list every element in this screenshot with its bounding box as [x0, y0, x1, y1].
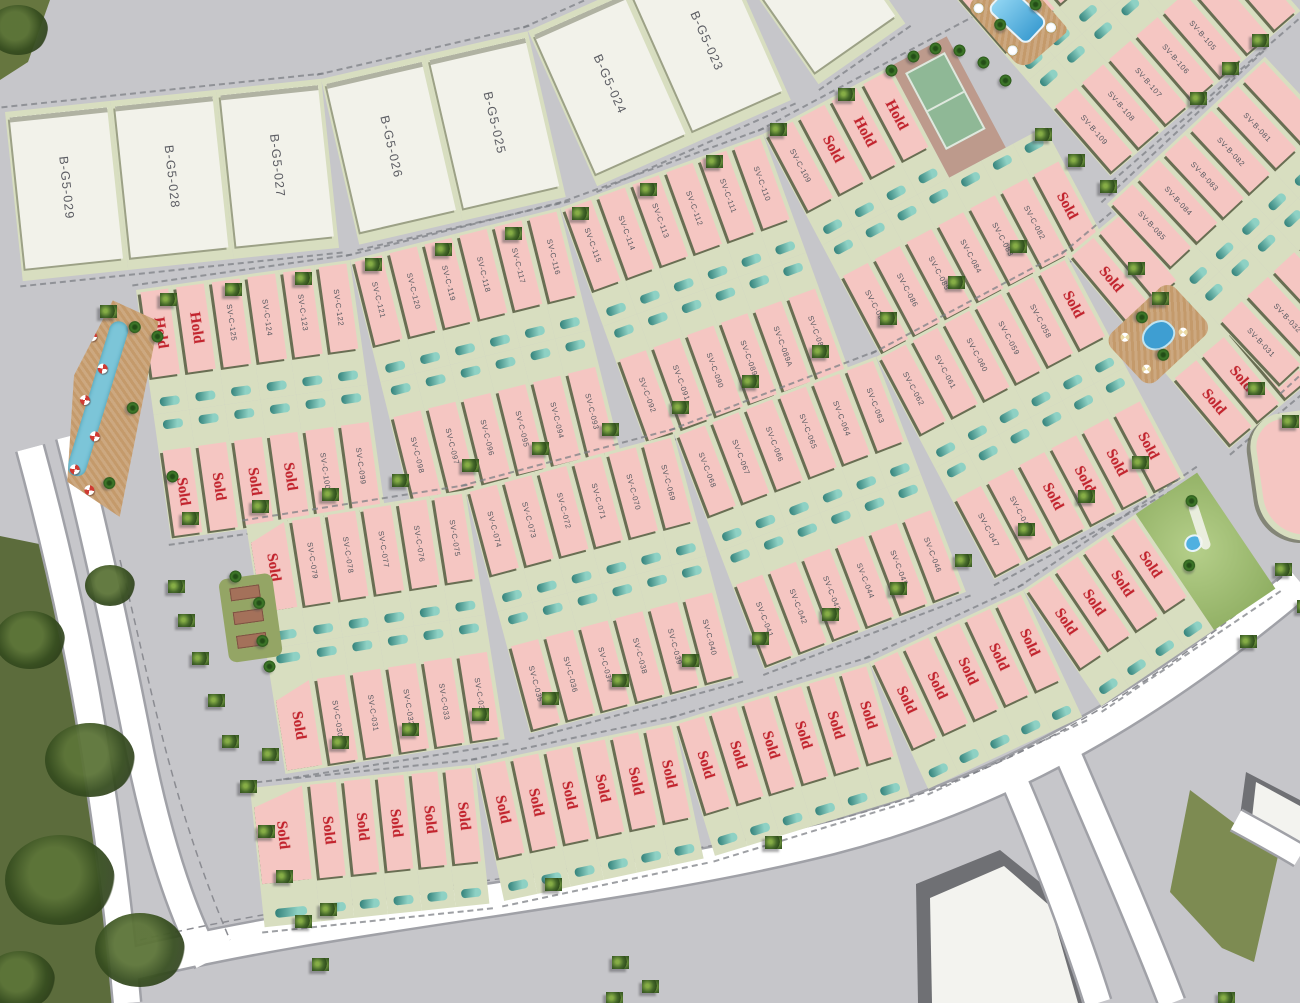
plunge-pool [162, 418, 183, 430]
palm-tree-icon [165, 470, 180, 483]
tree-icon [890, 582, 907, 595]
plunge-pool [269, 403, 290, 415]
plunge-pool [639, 289, 661, 304]
tree-canopy [95, 913, 185, 987]
plunge-pool [960, 171, 982, 188]
plot-body: Sold [411, 771, 447, 867]
planter-box [233, 608, 265, 625]
plunge-pool [423, 629, 444, 641]
plunge-pool [675, 542, 697, 556]
plunge-pool [977, 444, 999, 461]
plot-body: Sold [445, 768, 481, 864]
plot-body: B-G5-028 [115, 96, 228, 257]
plunge-pool [489, 334, 511, 348]
plot-body: Sold [310, 782, 346, 878]
tree-icon [1240, 635, 1257, 648]
tree-icon [100, 305, 117, 318]
palm-tree-icon [228, 570, 243, 583]
palm-tree-icon [251, 596, 268, 611]
plunge-pool [524, 325, 546, 339]
plunge-pool [571, 570, 593, 584]
block-svc-lane: SoldSoldSoldSoldSoldSold [250, 764, 489, 927]
plot-B-G5-029[interactable]: B-G5-029 [5, 101, 128, 281]
tree-icon [462, 459, 479, 472]
plunge-pool [454, 343, 476, 357]
plunge-pool [917, 167, 939, 184]
plot-B-G5-028[interactable]: B-G5-028 [110, 90, 233, 270]
plunge-pool [647, 311, 669, 326]
tree-icon [1248, 382, 1265, 395]
plunge-pool [673, 277, 695, 292]
tree-icon [160, 293, 177, 306]
tree-icon [322, 488, 339, 501]
block-svc-south: SoldSV-C-079SV-C-078SV-C-077SV-C-076SV-C… [246, 490, 505, 774]
palm-tree-icon [150, 330, 165, 343]
plot-number-label: B-G5-028 [115, 96, 228, 257]
tree-icon [182, 512, 199, 525]
plunge-pool [542, 602, 564, 616]
tree-icon [706, 155, 723, 168]
plot-body: SV-C-122 [319, 263, 359, 352]
block-svc-lane-row: SoldSoldSoldSoldSoldSold [674, 662, 910, 856]
tree-icon [545, 878, 562, 891]
plunge-pool [945, 461, 967, 478]
tree-icon [402, 723, 419, 736]
plunge-pool [1282, 208, 1300, 228]
plots-layer: B-G5-029B-G5-028B-G5-027B-G5-026B-G5-025… [0, 0, 1300, 1003]
tree-icon [822, 608, 839, 621]
tree-icon [1132, 456, 1149, 469]
plunge-pool [885, 184, 907, 201]
tree-icon [320, 903, 337, 916]
tree-icon [606, 992, 623, 1003]
plunge-pool [822, 218, 844, 235]
plunge-pool [822, 488, 844, 504]
tree-icon [222, 735, 239, 748]
plunge-pool [788, 501, 810, 517]
plunge-pool [928, 188, 950, 205]
block-svc-lane: SoldSoldSoldSoldSoldSold [475, 722, 704, 901]
master-plan-map: B-G5-029B-G5-028B-G5-027B-G5-026B-G5-025… [0, 0, 1300, 1003]
plunge-pool [1062, 373, 1084, 390]
umbrella-icon [89, 431, 101, 443]
tree-icon [948, 276, 965, 289]
tree-icon [1010, 240, 1027, 253]
tree-icon [1100, 180, 1117, 193]
plunge-pool [853, 201, 875, 218]
plunge-pool [1203, 282, 1224, 302]
plunge-pool [863, 497, 885, 513]
plunge-pool [337, 370, 358, 382]
plunge-pool [1094, 356, 1116, 373]
tree-canopy [0, 951, 55, 1003]
tree-canopy [5, 835, 115, 925]
palm-tree-icon [884, 64, 899, 77]
parasol-icon [1119, 331, 1132, 344]
plunge-pool [384, 611, 405, 623]
plunge-pool [641, 851, 661, 864]
tree-icon [672, 401, 689, 414]
tree-icon [332, 736, 349, 749]
tree-canopy [0, 611, 65, 668]
plunge-pool [605, 302, 627, 317]
plunge-pool [717, 832, 738, 846]
plot-status-label: Sold [378, 775, 414, 871]
plunge-pool [1230, 258, 1251, 278]
tree-icon [1018, 523, 1035, 536]
plunge-pool [234, 408, 255, 420]
plunge-pool [1051, 705, 1072, 721]
plot-number-label: SV-C-122 [319, 263, 359, 352]
plunge-pool [613, 323, 635, 338]
plunge-pool [1098, 677, 1119, 695]
plunge-pool [460, 365, 482, 379]
umbrella-icon [84, 484, 96, 496]
plunge-pool [1293, 167, 1300, 187]
plunge-pool [1183, 620, 1204, 638]
plunge-pool [1020, 719, 1041, 735]
tree-icon [252, 500, 269, 513]
plunge-pool [1126, 658, 1147, 676]
plot-body: B-G5-027 [220, 85, 333, 246]
plunge-pool [729, 548, 751, 564]
plunge-pool [605, 561, 627, 575]
tree-icon [1152, 292, 1169, 305]
palm-tree-icon [976, 56, 991, 69]
plot-body: Sold [378, 775, 414, 871]
tree-icon [532, 442, 549, 455]
plunge-pool [935, 441, 957, 458]
plot-number-label: B-G5-029 [10, 107, 123, 268]
plunge-pool [896, 204, 918, 221]
tree-icon [276, 870, 293, 883]
plunge-pool [507, 611, 529, 625]
plunge-pool [1104, 377, 1126, 394]
tree-icon [240, 780, 257, 793]
plunge-pool [530, 347, 552, 361]
plunge-pool [501, 589, 523, 603]
palm-tree-icon [906, 50, 921, 63]
block-svc-lane: SoldSoldSoldSoldSoldSold [674, 662, 910, 856]
plunge-pool [419, 606, 440, 618]
plunge-pool [714, 286, 736, 301]
tree-icon [765, 836, 782, 849]
tree-icon [770, 123, 787, 136]
plunge-pool [574, 865, 594, 878]
plunge-pool [305, 398, 326, 410]
plunge-pool [266, 380, 287, 392]
plunge-pool [681, 565, 703, 579]
block-svc-lane-row: SoldSoldSoldSoldSoldSold [250, 764, 489, 927]
spa-circle-icon [970, 0, 987, 17]
tree-canopy [0, 5, 48, 54]
plot-body: SV-C-099 [341, 422, 381, 511]
plunge-pool [1120, 0, 1141, 17]
tree-icon [168, 580, 185, 593]
plunge-pool [928, 762, 949, 778]
plunge-pool [815, 802, 836, 816]
tree-icon [812, 345, 829, 358]
plunge-pool [495, 356, 517, 370]
plunge-pool [721, 527, 743, 543]
block-svc-lane-row: SoldSoldSoldSoldSoldSold [475, 722, 704, 901]
plunge-pool [1009, 427, 1031, 444]
plunge-pool [1041, 411, 1063, 428]
plot-body: Sold [344, 778, 380, 874]
tree-canopy [45, 723, 135, 797]
plunge-pool [880, 782, 901, 796]
plunge-pool [748, 274, 770, 289]
tree-icon [642, 980, 659, 993]
tree-icon [312, 958, 329, 971]
plunge-pool [394, 895, 414, 906]
plunge-pool [536, 580, 558, 594]
plunge-pool [384, 360, 406, 374]
garden-amenity [218, 572, 283, 663]
plunge-pool [198, 413, 219, 425]
plunge-pool [830, 509, 852, 525]
plot-status-label: Sold [310, 782, 346, 878]
plunge-pool [966, 424, 988, 441]
tree-icon [1128, 262, 1145, 275]
plunge-pool [611, 583, 633, 597]
plunge-pool [565, 339, 587, 353]
palm-tree-icon [928, 42, 943, 55]
plunge-pool [1093, 21, 1114, 41]
tree-icon [262, 748, 279, 761]
plunge-pool [302, 375, 323, 387]
tree-icon [602, 423, 619, 436]
plunge-pool [750, 822, 771, 836]
plunge-pool [754, 514, 776, 530]
plunge-pool [1065, 44, 1086, 64]
plunge-pool [559, 316, 581, 330]
tree-icon [295, 915, 312, 928]
plunge-pool [1256, 233, 1277, 253]
plunge-pool [352, 640, 373, 652]
plunge-pool [348, 617, 369, 629]
plot-status-label: Sold [445, 768, 481, 864]
tree-icon [505, 227, 522, 240]
tree-icon [1252, 34, 1269, 47]
tree-icon [1190, 92, 1207, 105]
palm-tree-icon [262, 660, 277, 673]
tree-icon [472, 708, 489, 721]
plunge-pool [577, 593, 599, 607]
plunge-pool [461, 887, 481, 898]
plunge-pool [707, 265, 729, 280]
plunge-pool [159, 395, 180, 407]
plunge-pool [360, 898, 380, 909]
tree-icon [365, 258, 382, 271]
tree-icon [742, 375, 759, 388]
plunge-pool [740, 253, 762, 268]
plunge-pool [312, 623, 333, 635]
tree-icon [225, 283, 242, 296]
tree-icon [1222, 62, 1239, 75]
tree-icon [640, 183, 657, 196]
plunge-pool [959, 748, 980, 764]
parasol-icon [1177, 326, 1190, 339]
plunge-pool [1030, 390, 1052, 407]
plunge-pool [855, 475, 877, 491]
plunge-pool [316, 645, 337, 657]
tree-icon [258, 825, 275, 838]
plunge-pool [796, 522, 818, 538]
tree-icon [392, 474, 409, 487]
tree-icon [435, 243, 452, 256]
plot-body: B-G5-029 [10, 107, 123, 268]
plunge-pool [390, 382, 412, 396]
plunge-pool [608, 858, 628, 871]
tree-icon [682, 654, 699, 667]
plunge-pool [1038, 68, 1059, 88]
tree-icon [192, 652, 209, 665]
tree-icon [295, 272, 312, 285]
plunge-pool [782, 812, 803, 826]
tree-icon [208, 694, 225, 707]
lazy-river-water [65, 319, 130, 479]
palm-tree-icon [126, 319, 143, 334]
plunge-pool [681, 299, 703, 314]
plunge-pool [195, 390, 216, 402]
tree-icon [1218, 992, 1235, 1003]
tree-icon [752, 632, 769, 645]
plunge-pool [889, 462, 911, 478]
tree-icon [955, 554, 972, 567]
plunge-pool [1073, 394, 1095, 411]
plunge-pool [341, 393, 362, 405]
tree-canopy [85, 565, 135, 606]
lazy-river-pool-area [51, 296, 161, 518]
plunge-pool [387, 634, 408, 646]
plunge-pool [646, 574, 668, 588]
tree-icon [612, 674, 629, 687]
parasol-icon [1140, 363, 1153, 376]
tree-icon [1275, 563, 1292, 576]
tree-icon [1282, 415, 1299, 428]
tree-icon [880, 312, 897, 325]
plunge-pool [782, 262, 804, 277]
plot-status-label: Sold [411, 771, 447, 867]
plunge-pool [230, 385, 251, 397]
palm-tree-icon [998, 74, 1013, 87]
tree-icon [572, 207, 589, 220]
plunge-pool [419, 351, 441, 365]
plunge-pool [425, 374, 447, 388]
palm-tree-icon [254, 633, 271, 648]
palm-tree-icon [124, 400, 141, 415]
tree-icon [1078, 490, 1095, 503]
plunge-pool [763, 535, 785, 551]
block-bg5: B-G5-026B-G5-025 [321, 31, 566, 244]
tree-icon [838, 88, 855, 101]
plunge-pool [897, 484, 919, 500]
plot-number-label: SV-C-099 [341, 422, 381, 511]
block-bg5: B-G5-029B-G5-028B-G5-027 [5, 79, 339, 281]
palm-tree-icon [952, 44, 967, 57]
plunge-pool [991, 154, 1013, 171]
plunge-pool [508, 879, 528, 892]
plunge-pool [455, 600, 476, 612]
tree-icon [1068, 154, 1085, 167]
block-bg5-row: B-G5-029B-G5-028B-G5-027 [5, 79, 339, 281]
plunge-pool [864, 221, 886, 238]
plot-status-label: Sold [344, 778, 380, 874]
palm-tree-icon [101, 475, 118, 490]
tree-icon [178, 614, 195, 627]
plunge-pool [989, 734, 1010, 750]
umbrella-icon [86, 331, 98, 343]
plunge-pool [774, 240, 796, 255]
plunge-pool [640, 552, 662, 566]
plunge-pool [1154, 639, 1175, 657]
plunge-pool [427, 891, 447, 902]
plunge-pool [832, 238, 854, 255]
plunge-pool [458, 623, 479, 635]
palm-tree-icon [1179, 556, 1199, 575]
block-bg5-row: B-G5-026B-G5-025 [321, 31, 566, 244]
plot-B-G5-027[interactable]: B-G5-027 [216, 79, 339, 259]
plunge-pool [998, 407, 1020, 424]
tree-icon [1035, 128, 1052, 141]
plunge-pool [847, 792, 868, 806]
plot-number-label: B-G5-027 [220, 85, 333, 246]
tree-icon [542, 692, 559, 705]
plunge-pool [674, 843, 694, 856]
tree-icon [612, 956, 629, 969]
